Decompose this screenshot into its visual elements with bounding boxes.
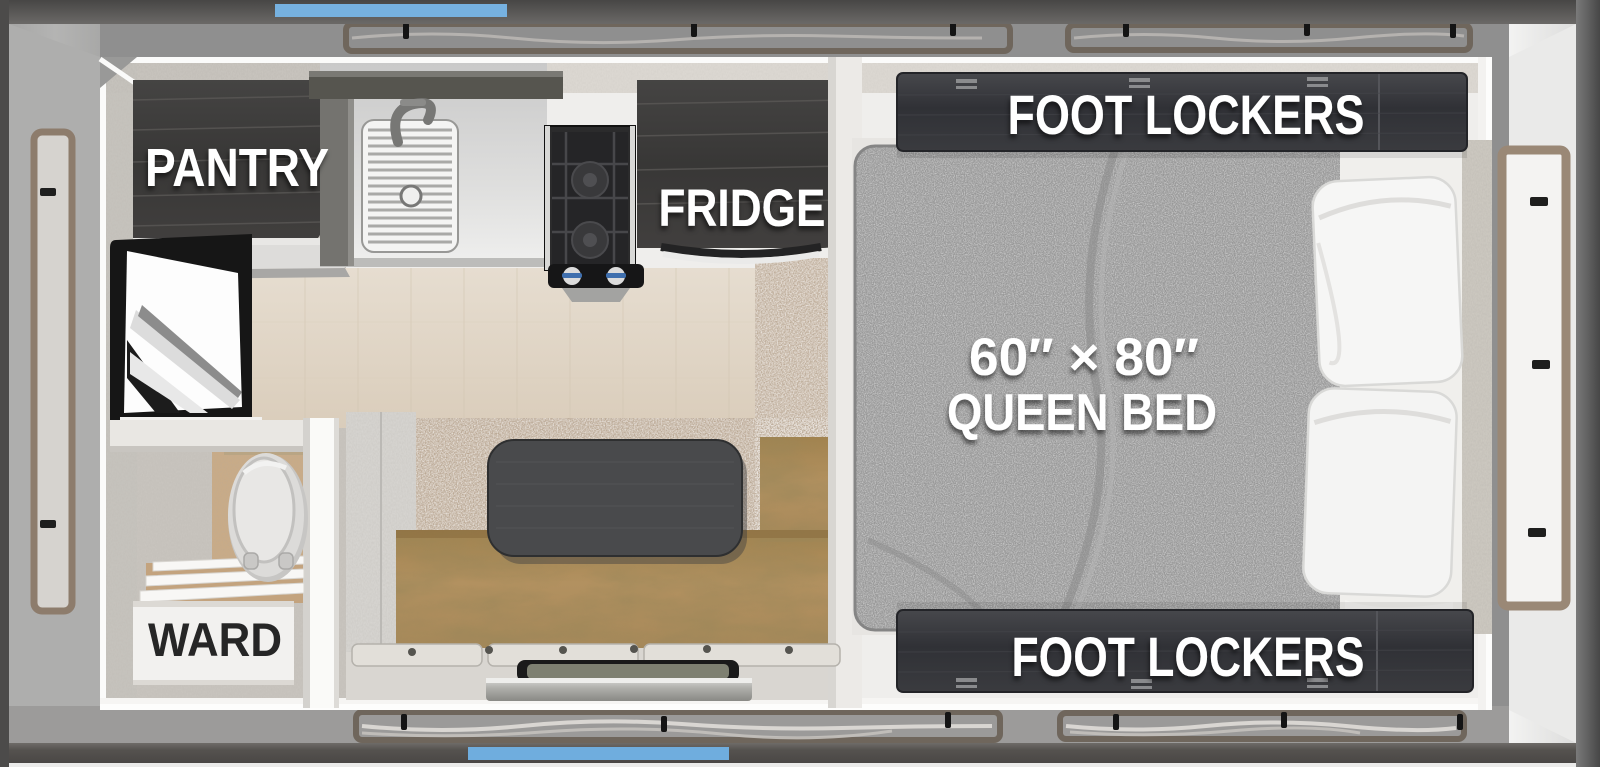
svg-text:WARD: WARD — [148, 613, 282, 666]
svg-text:60″ × 80″: 60″ × 80″ — [969, 328, 1199, 387]
svg-text:FOOT LOCKERS: FOOT LOCKERS — [1012, 625, 1365, 688]
svg-text:PANTRY: PANTRY — [145, 138, 329, 198]
svg-text:FOOT LOCKERS: FOOT LOCKERS — [1008, 83, 1365, 146]
svg-text:FRIDGE: FRIDGE — [659, 179, 826, 238]
svg-text:QUEEN BED: QUEEN BED — [947, 384, 1217, 442]
